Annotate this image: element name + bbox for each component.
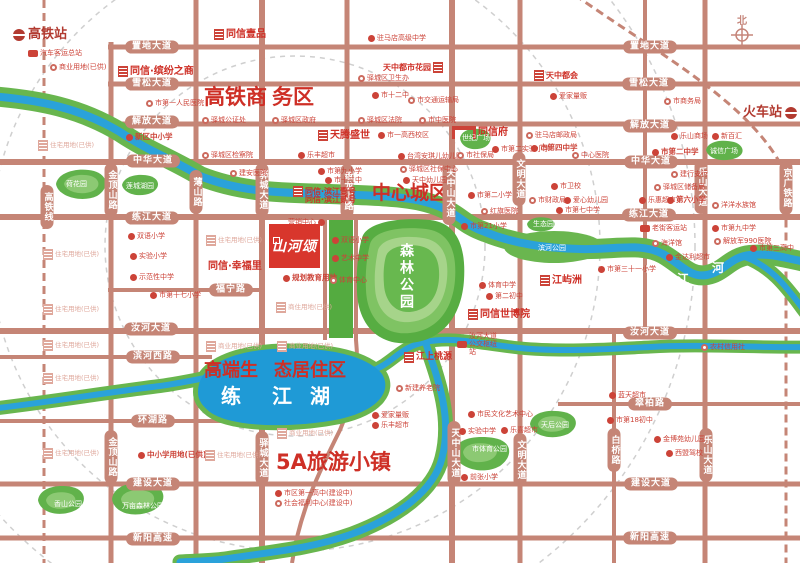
label-text: 金顶山路 <box>107 437 117 477</box>
poi-label: 双语小学 <box>332 236 369 244</box>
ring-icon <box>526 132 533 139</box>
label-text: 解放大道 <box>630 121 670 131</box>
dot-icon <box>550 93 557 100</box>
ring-icon <box>202 117 209 124</box>
poi-label: 天中幼儿园 <box>403 176 447 184</box>
compass-north-label: 北 <box>731 12 753 27</box>
dot-icon <box>318 168 325 175</box>
poi-label: 驿城区检察院 <box>202 151 253 159</box>
label-text: 市体育公园 <box>472 445 507 453</box>
label-text: 新阳高速 <box>133 534 173 544</box>
park-label: 世纪广场 <box>462 135 490 142</box>
label-text: 乐喜超市 <box>510 426 538 434</box>
label-text: 市卫校 <box>560 182 581 190</box>
poi-label: 规划教育用地 <box>283 274 337 283</box>
logo-seal-icon <box>273 237 280 244</box>
dot-icon <box>712 133 719 140</box>
label-text: 市第二小学 <box>477 191 512 199</box>
label-text: 住宅用地(已供) <box>55 375 99 382</box>
dot-icon <box>639 197 646 204</box>
ring-icon <box>714 238 721 245</box>
ring-icon <box>652 240 659 247</box>
poi-label: 市中医院 <box>419 116 456 124</box>
lbld-icon <box>277 341 287 352</box>
poi-label: 乐山商场 <box>671 132 708 140</box>
label-text: 海洋馆 <box>661 239 682 247</box>
label-text: 中心医院 <box>581 151 609 159</box>
ring-icon <box>529 197 536 204</box>
poi-label: 实验中学 <box>459 427 496 435</box>
poi-label: 市区第一高中(建设中) <box>275 489 352 497</box>
dot-icon <box>126 134 133 141</box>
label-text: 务区 <box>272 85 314 109</box>
land-parcel-label: 住宅用地(已供) <box>205 450 261 461</box>
label-text: 解放大道 <box>132 117 172 127</box>
poi-label: 市第21小学 <box>461 222 507 230</box>
label-text: 驿城区政府 <box>281 116 316 124</box>
poi-label: 爱心幼儿园 <box>564 196 608 204</box>
dot-icon <box>652 149 659 156</box>
ring-icon <box>146 100 153 107</box>
park-label: 荷花园 <box>66 181 87 188</box>
label-text: 新区中小学 <box>135 133 173 142</box>
project-label: 同信·幸福里 <box>208 262 262 272</box>
label-text: 天后公园 <box>541 421 569 429</box>
dot-icon <box>712 225 719 232</box>
ring-icon <box>712 202 719 209</box>
poi-label: 市第一人民医院 <box>146 99 204 107</box>
ring-icon <box>408 97 415 104</box>
zone-title: 河 <box>712 262 724 274</box>
poi-label: 第二初中 <box>486 292 523 300</box>
label-text: 文明大道 <box>516 440 526 480</box>
dot-icon <box>459 428 466 435</box>
label-text: 驻马店高级中学 <box>377 34 426 42</box>
label-text: 乐丰超市 <box>381 421 409 429</box>
label-text: 汝河大道 <box>131 324 171 334</box>
bld-icon <box>118 66 128 77</box>
label-text: 市第七中学 <box>565 206 600 214</box>
label-text: 市第九中学 <box>721 224 756 232</box>
label-text: 同信壹品 <box>226 30 266 40</box>
zone-title: 江 <box>272 386 292 406</box>
park-label: 市体育公园 <box>472 446 507 453</box>
poi-label: 乐丰超市 <box>298 151 335 159</box>
label-text: 高铁站 <box>28 28 67 41</box>
zone-title: 高铁商 <box>204 87 267 108</box>
dot-icon <box>130 274 137 281</box>
label-text: 莲城湖园 <box>126 182 154 190</box>
ring-icon <box>701 344 708 351</box>
ring-icon <box>230 170 237 177</box>
project-label: 江上桃源 <box>404 352 452 363</box>
poi-label: 驿城区法院 <box>358 116 402 124</box>
label-text: 新建养老院 <box>405 384 440 392</box>
dot-icon <box>368 35 375 42</box>
road-pill: 解放大道 <box>125 116 179 129</box>
bld-icon <box>433 62 443 73</box>
lbld-icon <box>205 450 215 461</box>
poi-label: 市十二中 <box>372 91 409 99</box>
road-pill-vertical: 高铁线 <box>41 185 54 229</box>
label-text: 双语小学 <box>137 232 165 240</box>
label-text: 住宅用地(已供) <box>55 342 99 349</box>
road-pill: 雪松大道 <box>125 78 179 91</box>
project-label: 天腾盛世 <box>318 130 370 141</box>
dot-icon <box>372 422 379 429</box>
land-parcel-label: 商业用地(已供) <box>277 341 333 352</box>
ring-icon <box>275 500 282 507</box>
dot-icon <box>283 275 290 282</box>
label-text: 住宅用地(已供) <box>55 450 99 457</box>
label-text: 江 <box>272 384 292 408</box>
label-text: 同信·滨江贰号 <box>305 196 356 204</box>
label-text: 中华大道 <box>133 156 173 166</box>
dot-icon <box>150 292 157 299</box>
label-text: 福宁路 <box>216 285 246 295</box>
label-text: 市第一人民医院 <box>155 99 204 107</box>
label-text: 同信·缤纷之商 <box>130 67 194 77</box>
label-text: 市商务局 <box>673 97 701 105</box>
train-icon <box>785 107 797 119</box>
label-text: 天中都会 <box>546 72 578 80</box>
bld-icon <box>540 275 550 286</box>
dot-icon <box>372 412 379 419</box>
label-text: 建安医院 <box>239 169 267 177</box>
dot-icon <box>378 132 385 139</box>
label-text: 第二初中 <box>495 292 523 300</box>
label-text: 雪松大道 <box>629 79 669 89</box>
label-text: 京广铁路 <box>782 168 792 208</box>
ring-icon <box>419 117 426 124</box>
label-text: 蓝天超市 <box>618 391 646 399</box>
lbld-icon <box>206 235 216 246</box>
ring-icon <box>457 152 464 159</box>
label-text: 艺术中学 <box>341 254 369 262</box>
poi-label: 建行支行 <box>671 170 708 178</box>
poi-label: 体育中学 <box>479 281 516 289</box>
label-text: 湖 <box>310 384 330 408</box>
dot-icon <box>654 436 661 443</box>
poi-label: 双语小学 <box>128 232 165 240</box>
label-text: 体育中心 <box>339 276 367 284</box>
label-text: 滨河公园 <box>538 244 566 252</box>
train-icon <box>13 29 25 41</box>
label-text: 香山公园 <box>54 500 82 508</box>
road-pill: 雪松大道 <box>622 78 676 91</box>
poi-label: 驻马店邮政局 <box>526 131 577 139</box>
poi-label: 红旗医院 <box>481 207 518 215</box>
label-text: 市第十七小学 <box>159 291 201 299</box>
poi-label: 新区中小学 <box>126 133 173 142</box>
label-text: 乐山商场 <box>680 132 708 140</box>
ring-icon <box>572 152 579 159</box>
label-text: 汽车客运总站 <box>40 49 82 57</box>
dot-icon <box>486 293 493 300</box>
poi-label: 市财政局 <box>529 196 566 204</box>
label-text: 文明大道 <box>515 159 525 199</box>
land-parcel-label: 住宅用地(已供) <box>43 340 99 351</box>
label-text: 市一高西校区 <box>387 131 429 139</box>
label-text: 天中山大道 <box>450 428 460 478</box>
ring-icon <box>358 75 365 82</box>
project-label: 同信世博院 <box>468 309 530 320</box>
road-pill-vertical: 文明大道 <box>513 152 526 206</box>
road-pill: 中华大道 <box>624 156 678 169</box>
lbld-icon <box>43 249 53 260</box>
road-pill-vertical: 金顶山路 <box>105 163 118 217</box>
park-label: 万亩森林公园 <box>122 503 164 510</box>
poi-label: 洋洋水族馆 <box>712 201 756 209</box>
label-text: 市第二实验小学 <box>501 145 550 153</box>
label-text: 天中幼儿园 <box>412 176 447 184</box>
label-text: 同信·幸福里 <box>208 262 262 272</box>
label-text: 汝河大道公交枢纽站 <box>469 332 501 356</box>
label-text: 金顶山路 <box>107 170 117 210</box>
poi-label: 台湾安琪儿幼儿园 <box>398 152 463 160</box>
zone-title: 练 <box>221 386 241 406</box>
dot-icon <box>372 92 379 99</box>
label-text: 社会福利中心(建设中) <box>284 499 352 507</box>
label-text: 住宅用地(已供) <box>217 452 261 459</box>
road-pill: 置地大道 <box>125 41 179 54</box>
label-text: 建设大道 <box>133 479 173 489</box>
land-parcel-label: 住宅用地(已供) <box>43 249 99 260</box>
dot-icon <box>332 255 339 262</box>
label-text: 世纪广场 <box>462 134 490 142</box>
poi-label: 第六小学 <box>667 196 706 205</box>
dot-icon <box>332 237 339 244</box>
label-text: 中小学用地(已供) <box>147 451 206 460</box>
label-text: 住宅用地(已供) <box>55 251 99 258</box>
dot-icon <box>551 183 558 190</box>
dot-icon <box>275 490 282 497</box>
label-text: 金达利超市 <box>675 253 710 261</box>
ring-icon <box>671 171 678 178</box>
poi-label: 体育中心 <box>330 276 367 284</box>
label-text: 双语小学 <box>341 236 369 244</box>
road-pill-vertical: 白桥路 <box>608 428 621 472</box>
dot-icon <box>667 197 674 204</box>
road-pill: 建设大道 <box>624 478 678 491</box>
poi-label: 市民文化艺术中心 <box>468 410 533 418</box>
poi-label: 市卫校 <box>551 182 581 190</box>
lbld-icon <box>43 448 53 459</box>
poi-label: 市第二中学 <box>652 148 699 157</box>
dot-icon <box>461 474 468 481</box>
dot-icon <box>479 282 486 289</box>
road-pill: 解放大道 <box>623 120 677 133</box>
lbld-icon <box>206 341 216 352</box>
poi-label: 市十三中 <box>325 176 362 184</box>
road-pill: 置地大道 <box>623 41 677 54</box>
label-text: 实验中学 <box>468 427 496 435</box>
station-label: 高铁站 <box>13 28 67 41</box>
ring-icon <box>50 64 57 71</box>
label-text: 台湾安琪儿幼儿园 <box>407 152 463 160</box>
lbld-icon <box>277 428 287 439</box>
lbld-icon <box>43 373 53 384</box>
poi-label: 驿城区社保中心 <box>400 165 458 173</box>
label-text: 驿城区法院 <box>367 116 402 124</box>
zone-title: 湖 <box>310 386 330 406</box>
zone-title: 态居住区 <box>274 362 346 380</box>
label-text: 乐丰超市 <box>307 151 335 159</box>
label-text: 万亩森林公园 <box>122 502 164 510</box>
label-text: 洋洋水族馆 <box>721 201 756 209</box>
label-text: 商业用地(已供) <box>289 343 333 350</box>
dot-icon <box>666 450 673 457</box>
label-text: 住宅用地(已供) <box>55 306 99 313</box>
label-text: 实验小学 <box>139 252 167 260</box>
label-text: 驿城区社保中心 <box>409 165 458 173</box>
road-pill-vertical: 薄山路 <box>190 170 203 214</box>
label-text: 住宅用地(已供) <box>50 142 94 149</box>
zone-title: 务区 <box>272 87 314 108</box>
poi-label: 农村信用社 <box>701 343 745 351</box>
poi-label: 乐喜超市 <box>501 426 538 434</box>
poi-label: 市第18初中 <box>607 416 653 424</box>
label-text: 驿城区储备局 <box>663 183 705 191</box>
zone-title: 中心城区 <box>372 184 448 203</box>
label-text: 河 <box>712 261 724 275</box>
poi-label: 驻马店高级中学 <box>368 34 426 42</box>
label-text: 天中都市花园 <box>383 64 431 72</box>
label-text: 商业用地(已供) <box>289 430 333 437</box>
station-label: 火车站 <box>743 106 797 119</box>
poi-label: 新建养老院 <box>396 384 440 392</box>
bld-icon <box>293 186 303 197</box>
poi-label: 实验小学 <box>130 252 167 260</box>
label-text: 森林公园 <box>398 243 414 311</box>
dot-icon <box>468 192 475 199</box>
label-text: 置地大道 <box>630 42 670 52</box>
label-text: 驻马店邮政局 <box>535 131 577 139</box>
label-text: 金博苑幼儿园 <box>663 435 705 443</box>
label-text: 置地大道 <box>132 42 172 52</box>
land-parcel-label: 商住用地(已供) <box>276 302 332 313</box>
project-label: 同信·缤纷之商 <box>118 66 194 77</box>
label-text: 火车站 <box>743 106 782 119</box>
label-text: 练江大道 <box>629 210 669 220</box>
label-text: 老街客运站 <box>652 224 687 232</box>
label-text: 态居住区 <box>274 360 346 381</box>
ring-icon <box>396 385 403 392</box>
park-label: 滨河公园 <box>538 245 566 252</box>
zone-title: 江 <box>677 273 689 285</box>
label-text: 驿城区检察院 <box>211 151 253 159</box>
road-pill: 新阳高速 <box>126 533 180 546</box>
bld-icon <box>468 309 478 320</box>
poi-label: 前张小学 <box>461 473 498 481</box>
poi-label: 市第七中学 <box>556 206 600 214</box>
park-label: 生态园 <box>533 221 554 228</box>
ring-icon <box>481 208 488 215</box>
lbld-icon <box>38 140 48 151</box>
project-label: 同信壹品 <box>214 29 266 40</box>
road-pill: 滨河西路 <box>126 351 180 364</box>
label-text: 高铁线 <box>43 192 53 222</box>
road-pill: 汝河大道 <box>623 327 677 340</box>
dot-icon <box>609 392 616 399</box>
poi-label: 新百汇 <box>712 132 742 140</box>
label-text: 江屿洲 <box>552 276 582 286</box>
park-label: 诚信广场 <box>710 148 738 155</box>
poi-label: 市商务局 <box>664 97 701 105</box>
label-text: 汝河大道 <box>630 328 670 338</box>
land-parcel-label: 商业用地(已供) <box>277 428 333 439</box>
dot-icon <box>403 177 410 184</box>
label-text: 建设大道 <box>631 479 671 489</box>
lbld-icon <box>43 340 53 351</box>
label-text: 5A旅游小镇 <box>276 450 391 474</box>
dot-icon <box>501 427 508 434</box>
label-text: 中心城区 <box>372 182 448 204</box>
zone-title: 森林公园 <box>399 243 413 311</box>
dot-icon <box>750 245 757 252</box>
dot-icon <box>671 133 678 140</box>
label-text: 市第21小学 <box>470 222 507 230</box>
label-text: 生态园 <box>533 220 554 228</box>
label-text: 环湖路 <box>138 416 168 426</box>
road-pill: 福宁路 <box>209 284 253 297</box>
label-text: 市财政局 <box>538 196 566 204</box>
dot-icon <box>128 233 135 240</box>
label-text: 爱家量贩 <box>381 411 409 419</box>
dot-icon <box>130 253 137 260</box>
poi-label: 西盟驾校 <box>666 449 703 457</box>
ring-icon <box>664 98 671 105</box>
dot-icon <box>564 197 571 204</box>
label-text: 荷花园 <box>66 180 87 188</box>
poi-label: 市第三十一小学 <box>598 265 656 273</box>
label-text: 雪松大道 <box>132 79 172 89</box>
bus-icon <box>457 341 467 348</box>
poi-label: 中小学用地(已供) <box>138 451 206 460</box>
label-text: 市十三中 <box>334 176 362 184</box>
label-text: 爱心幼儿园 <box>573 196 608 204</box>
label-text: 红旗医院 <box>490 207 518 215</box>
dot-icon <box>468 411 475 418</box>
label-text: 天腾盛世 <box>330 131 370 141</box>
label-text: 市区第一高中(建设中) <box>284 489 352 497</box>
label-text: 新百汇 <box>721 132 742 140</box>
poi-label: 爱家量贩 <box>550 92 587 100</box>
lake-inflow-water <box>0 378 205 409</box>
label-text: 练江大道 <box>132 213 172 223</box>
park-label: 天后公园 <box>541 422 569 429</box>
poi-label: 市第九小学 <box>318 167 362 175</box>
road-pill: 汝河大道 <box>124 323 178 336</box>
ring-icon <box>272 117 279 124</box>
label-text: 市第三高中 <box>759 244 794 252</box>
road-pill: 翠柏路 <box>628 398 672 411</box>
poi-label: 市第九中学 <box>712 224 756 232</box>
label-text: 市社保局 <box>466 151 494 159</box>
label-text: 建行支行 <box>680 170 708 178</box>
poi-label: 示范性中学 <box>130 273 174 281</box>
label-text: 市第二中学 <box>661 148 699 157</box>
city-map: 北 山河颂 置地大道雪松大道解放大道中华大道练江大道汝河大道滨河西路环湖路建设大… <box>0 0 800 563</box>
lbld-icon <box>276 302 286 313</box>
dot-icon <box>325 177 332 184</box>
road-pill: 新阳高速 <box>623 532 677 545</box>
label-text: 驿城公证处 <box>211 116 246 124</box>
label-text: 白桥路 <box>610 435 620 465</box>
label-text: 商业用地(已供) <box>218 343 262 350</box>
poi-label: 驿城区政府 <box>272 116 316 124</box>
poi-label: 金达利超市 <box>666 253 710 261</box>
